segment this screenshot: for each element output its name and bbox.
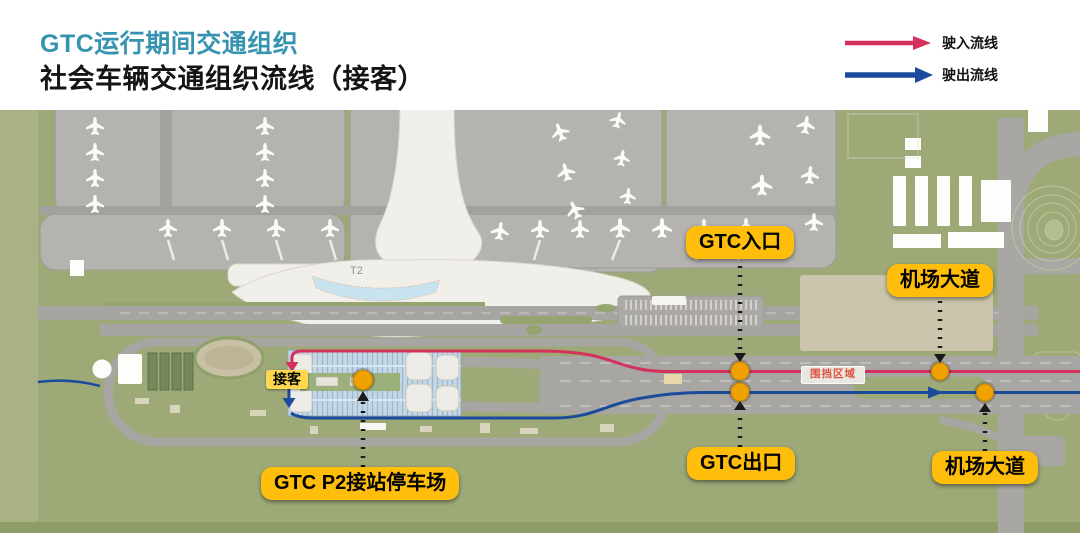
- enclosure-area-label: 围挡区域: [801, 366, 865, 384]
- legend-outbound-label: 驶出流线: [942, 65, 998, 85]
- legend-row-inbound: 驶入流线: [843, 30, 1043, 56]
- airport-avenue-north-dot: [929, 361, 951, 383]
- page-title: GTC运行期间交通组织: [40, 24, 298, 60]
- airport-map: T2: [0, 110, 1080, 533]
- gtc-exit-dot: [729, 381, 752, 404]
- airport-avenue-south-dot: [974, 382, 996, 404]
- outbound-arrow-icon: [843, 66, 933, 84]
- legend: 驶入流线 驶出流线: [843, 30, 1043, 94]
- gtc-entrance-label: GTC入口: [686, 226, 794, 259]
- airport-avenue-north-label: 机场大道: [887, 264, 993, 297]
- legend-row-outbound: 驶出流线: [843, 62, 1043, 88]
- page-subtitle: 社会车辆交通组织流线（接客）: [40, 57, 425, 96]
- p2-parking-label: GTC P2接站停车场: [261, 467, 459, 500]
- airport-avenue-south-label: 机场大道: [932, 451, 1038, 484]
- gtc-entrance-dot: [729, 360, 752, 383]
- p2-parking-dot: [351, 368, 375, 392]
- airport-map-svg: T2: [0, 110, 1080, 533]
- inbound-arrow-icon: [843, 34, 933, 52]
- legend-inbound-label: 驶入流线: [942, 33, 998, 53]
- terminal-label: T2: [350, 265, 363, 277]
- gtc-exit-label: GTC出口: [687, 447, 795, 480]
- pickup-tag-label: 接客: [266, 370, 308, 389]
